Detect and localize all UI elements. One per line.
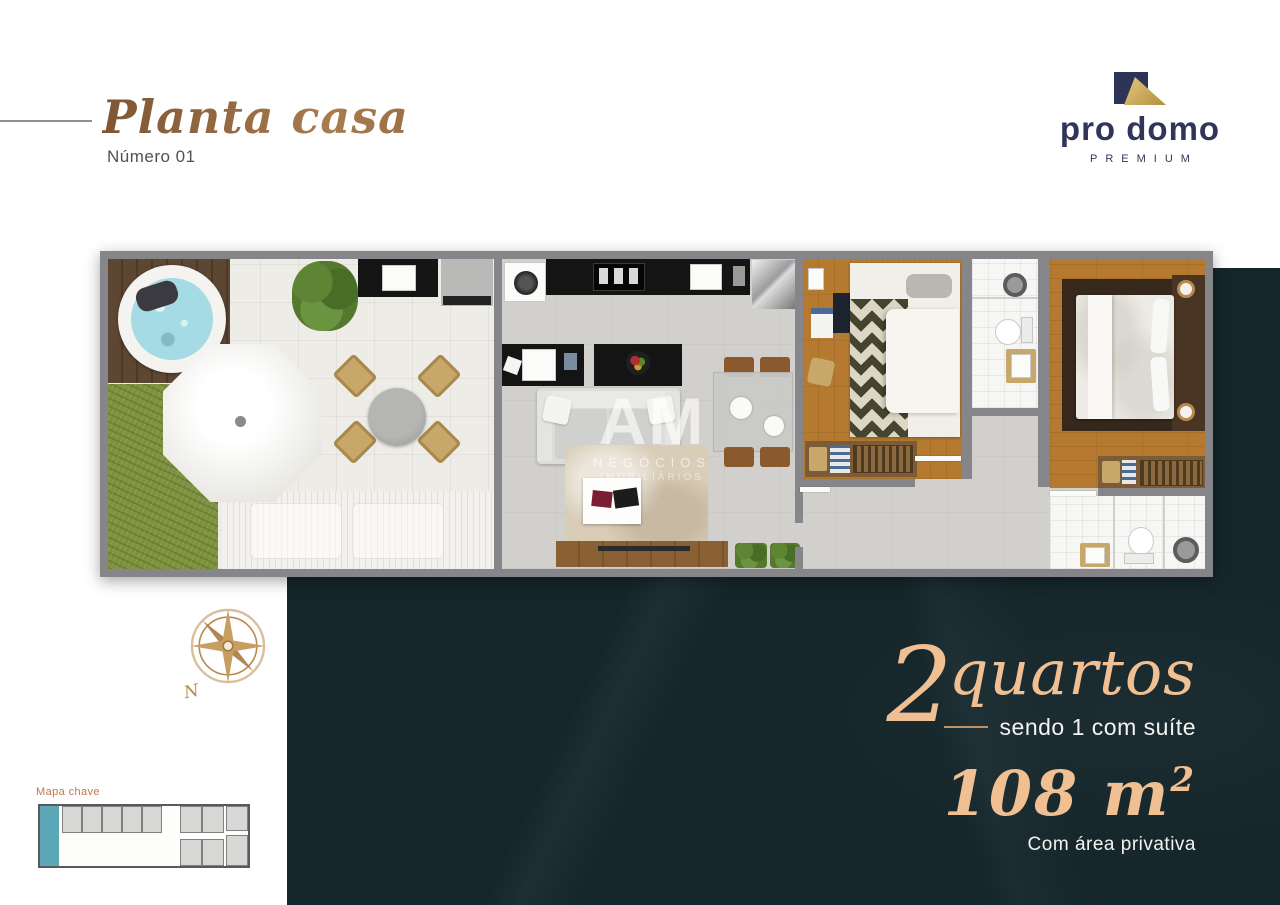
keymap-unit — [180, 839, 202, 866]
toilet-tank — [1021, 317, 1033, 343]
throw-pillow — [542, 395, 573, 426]
keymap-unit — [82, 806, 102, 833]
logo-tagline: PREMIUM — [1050, 153, 1230, 165]
logo-brand-name: pro domo — [1050, 110, 1230, 148]
area-note: Com área privativa — [866, 834, 1196, 856]
dish-rack — [733, 266, 745, 286]
refrigerator — [752, 260, 795, 309]
coffee-table-decor — [613, 487, 639, 508]
area-value: 108 m — [944, 757, 1171, 830]
wall — [100, 251, 108, 577]
shower-glass — [1113, 496, 1115, 569]
unit-specs: 2quartos sendo 1 com suíte 108 m2 Com ár… — [866, 636, 1196, 856]
sun-lounger — [250, 503, 342, 559]
floorplan-poster: { "header": { "title": "Planta casa", "s… — [0, 0, 1280, 905]
toilet — [995, 319, 1021, 345]
keymap-unit — [226, 806, 248, 831]
outdoor-sink — [382, 265, 416, 291]
tv-stand — [556, 541, 728, 567]
outdoor-cabinet-front — [443, 296, 491, 305]
wardrobe-box — [809, 447, 827, 471]
keymap-unit — [102, 806, 122, 833]
suite-shower-drain — [1173, 537, 1199, 563]
suite-toilet-tank — [1124, 553, 1154, 564]
keymap-diagram — [38, 804, 250, 868]
keymap-highlighted-unit — [40, 806, 59, 866]
bedrooms-number: 2 — [887, 643, 953, 728]
shower-drain — [1003, 273, 1027, 297]
keymap-unit — [122, 806, 142, 833]
bed1-pillow — [906, 274, 952, 298]
door-leaf — [1050, 491, 1096, 496]
keymap-unit — [180, 806, 202, 833]
title-decorative-line — [0, 120, 92, 122]
folded-clothes — [1122, 460, 1136, 484]
cooktop-burner — [614, 268, 623, 284]
sun-lounger — [352, 503, 444, 559]
suite-dash — [944, 726, 988, 728]
table-plate — [730, 397, 752, 419]
wall — [795, 259, 803, 523]
fruit-bowl — [626, 351, 650, 375]
bathroom-sink — [1011, 354, 1031, 378]
shower-glass — [1163, 496, 1165, 569]
door-leaf — [915, 456, 961, 461]
television — [598, 546, 690, 551]
suite-sink — [1085, 547, 1105, 564]
dining-chair — [760, 447, 790, 467]
wall — [795, 547, 803, 569]
keymap-unit — [202, 806, 224, 833]
bedrooms-label: quartos — [949, 636, 1196, 709]
keymap-label: Mapa chave — [36, 786, 100, 798]
wall — [1205, 251, 1213, 577]
keymap-unit — [142, 806, 162, 833]
wall — [1038, 259, 1050, 487]
potted-plant — [735, 543, 767, 568]
keymap-unit — [202, 839, 224, 866]
washing-machine-door — [514, 271, 538, 295]
bed2-folded-blanket — [1088, 295, 1112, 419]
nightstand-lamp — [1177, 403, 1195, 421]
page-title: Planta casa — [102, 90, 522, 144]
wall — [962, 259, 972, 479]
folded-clothes — [830, 445, 850, 473]
table-plate — [764, 416, 784, 436]
patio-table — [368, 388, 426, 446]
wardrobe-box — [1102, 461, 1120, 483]
dining-chair — [724, 447, 754, 467]
kitchen-sink — [690, 264, 722, 290]
dining-table — [713, 372, 793, 452]
keymap-unit — [62, 806, 82, 833]
suite-toilet — [1128, 527, 1154, 555]
floor-plan — [100, 251, 1213, 577]
wall — [494, 259, 502, 569]
wall — [100, 251, 1213, 259]
keymap-unit — [226, 835, 248, 866]
suite-note: sendo 1 com suíte — [1000, 714, 1196, 740]
bed1-duvet — [886, 309, 959, 413]
hanging-clothes-rail — [853, 445, 913, 473]
cooktop-burner — [629, 268, 638, 284]
wall — [100, 569, 1213, 577]
throw-pillow — [646, 395, 676, 425]
wall — [972, 408, 1038, 416]
wall — [803, 479, 915, 487]
umbrella-pole — [235, 416, 246, 427]
compass-rose-icon — [188, 606, 268, 686]
cooktop-burner — [599, 268, 608, 284]
hanging-clothes-rail — [1140, 460, 1203, 486]
page-subtitle: Número 01 — [107, 147, 196, 167]
door-leaf — [800, 487, 830, 492]
desk-laptop — [811, 308, 833, 338]
area-row: 108 m2 — [866, 757, 1196, 830]
garden-plant — [292, 261, 358, 331]
bedroom1-shelf — [808, 268, 824, 290]
wall — [1098, 488, 1205, 496]
coffee-table-books — [591, 490, 613, 508]
area-superscript: 2 — [1170, 760, 1196, 800]
nightstand-lamp — [1177, 280, 1195, 298]
shower-glass — [972, 297, 1038, 299]
island-appliance — [522, 349, 556, 381]
island-small-appliance — [564, 353, 577, 370]
